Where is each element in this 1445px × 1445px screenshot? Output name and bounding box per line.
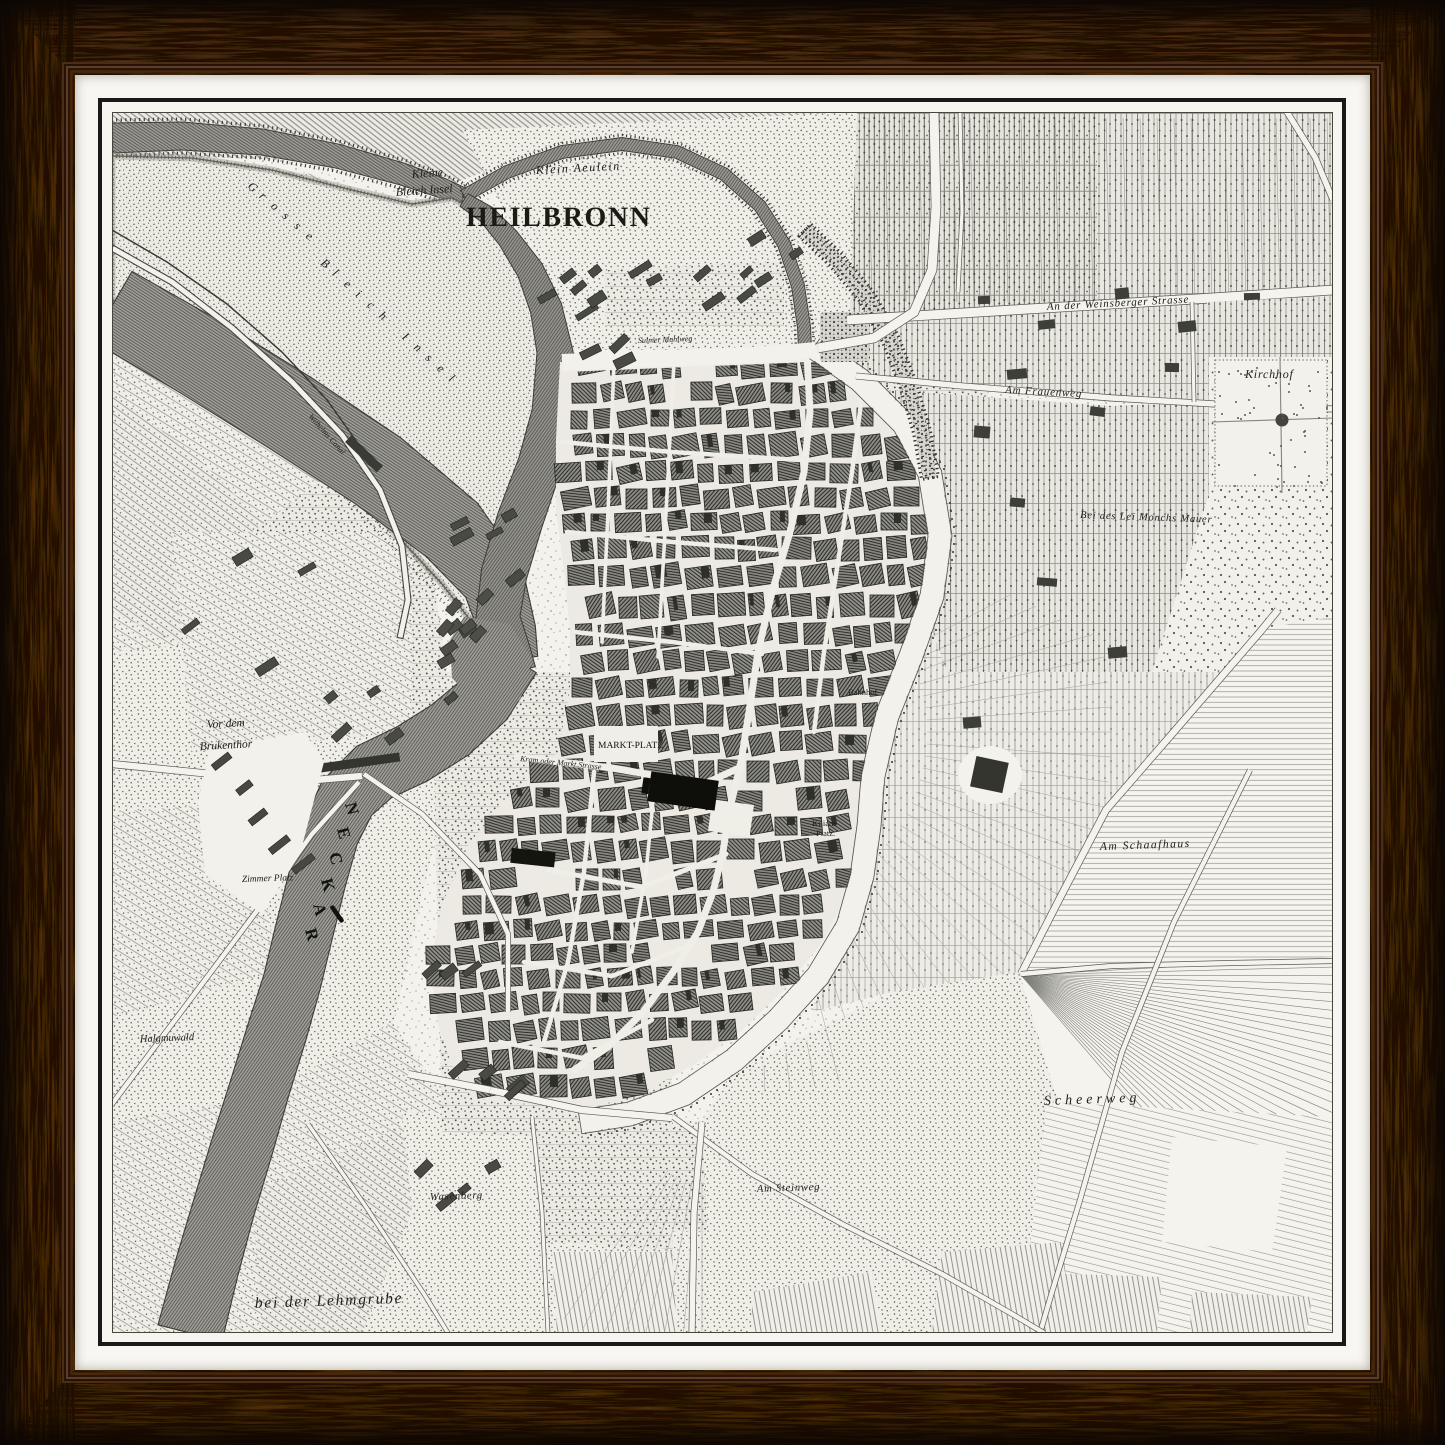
svg-text:Kirchhof: Kirchhof <box>1244 367 1294 381</box>
svg-text:Vor dem: Vor dem <box>207 717 246 731</box>
svg-text:Sulmer Muhlweg: Sulmer Muhlweg <box>638 334 693 345</box>
svg-text:Wasenberg: Wasenberg <box>430 1190 483 1203</box>
svg-text:Bahnhof: Bahnhof <box>848 687 877 697</box>
svg-text:Zimmer Platz: Zimmer Platz <box>242 873 294 885</box>
svg-text:Halgmuwald: Halgmuwald <box>139 1032 195 1045</box>
svg-text:Kleine: Kleine <box>410 165 444 181</box>
svg-text:Platz.: Platz. <box>816 828 835 838</box>
svg-text:Kilians: Kilians <box>812 818 837 828</box>
svg-text:Am Steinweg: Am Steinweg <box>756 1182 821 1195</box>
svg-text:MARKT-PLATZ: MARKT-PLATZ <box>598 741 663 751</box>
svg-text:HEILBRONN: HEILBRONN <box>466 202 652 233</box>
